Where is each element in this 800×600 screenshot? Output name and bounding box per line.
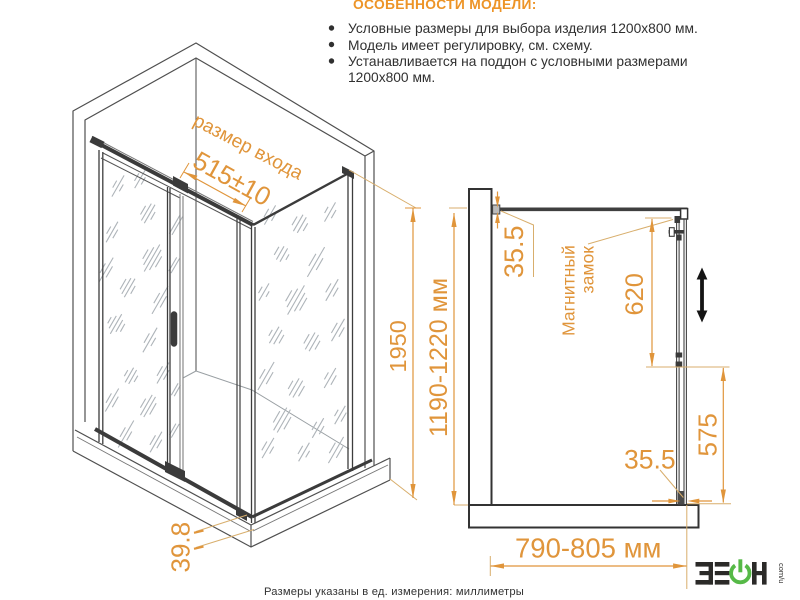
svg-text:1190-1220 мм: 1190-1220 мм xyxy=(425,278,453,437)
svg-text:790-805 мм: 790-805 мм xyxy=(515,533,661,564)
svg-text:Магнитный: Магнитный xyxy=(559,245,579,336)
svg-text:com/u: com/u xyxy=(777,563,786,583)
svg-text:1950: 1950 xyxy=(385,320,411,372)
svg-text:620: 620 xyxy=(621,273,649,315)
svg-text:575: 575 xyxy=(693,413,723,456)
svg-text:замок: замок xyxy=(578,246,598,294)
svg-text:35.5: 35.5 xyxy=(624,445,676,475)
svg-text:39.8: 39.8 xyxy=(166,522,196,573)
svg-text:35.5: 35.5 xyxy=(499,225,529,278)
